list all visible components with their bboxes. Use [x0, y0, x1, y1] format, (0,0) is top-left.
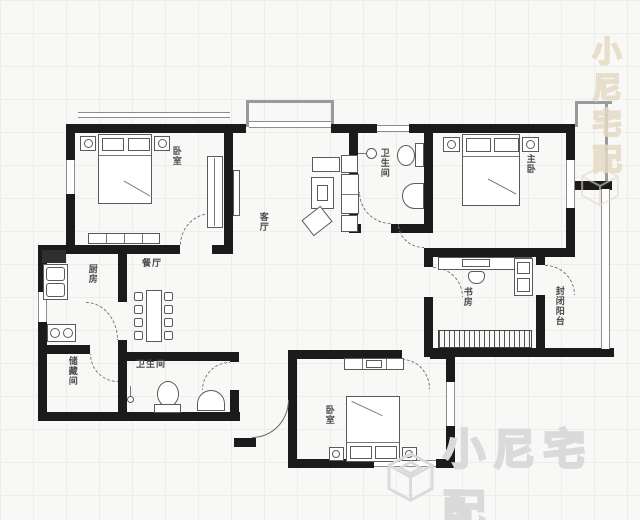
sofa-corner	[341, 155, 358, 173]
door-arc-study	[433, 267, 463, 297]
wall	[424, 257, 433, 267]
dresser-line	[106, 234, 107, 243]
wardrobe	[207, 156, 223, 228]
lamp	[405, 450, 413, 458]
watermark-brand-text: 小尼宅配	[443, 416, 640, 520]
lamp	[332, 450, 340, 458]
pillow	[128, 138, 150, 151]
wall	[233, 124, 246, 133]
lamp	[526, 140, 535, 149]
dresser-line	[386, 359, 387, 369]
desk-chair	[468, 271, 485, 284]
bay-window-wall	[605, 101, 608, 191]
dresser-line	[362, 359, 363, 369]
door-arc-bedroom-bottom	[402, 359, 430, 389]
pillow	[350, 446, 372, 459]
dining-chair	[164, 305, 173, 314]
door-arc-bathroom-bottom	[202, 362, 230, 390]
wall	[288, 350, 297, 468]
wall	[446, 350, 455, 382]
door-arc-master-bedroom	[398, 224, 424, 248]
dining-chair	[164, 331, 173, 340]
pillow	[375, 446, 397, 459]
lamp	[84, 139, 93, 148]
blanket-line	[99, 155, 151, 156]
floor-drain-stem	[130, 386, 131, 396]
door-arc-bathroom-top	[359, 192, 391, 224]
dining-chair	[134, 318, 143, 327]
door-arc-storage	[90, 354, 118, 382]
wall	[212, 245, 233, 254]
toilet-bowl	[397, 145, 415, 166]
lamp	[158, 139, 167, 148]
wall	[566, 133, 575, 160]
wardrobe-line	[214, 158, 215, 226]
balcony-bay-wall	[331, 100, 334, 127]
room-label-bathroom-top: 卫生间	[378, 148, 389, 178]
dining-chair	[134, 292, 143, 301]
armchair	[301, 206, 332, 237]
watermark-bottom-right: 小尼宅配	[384, 416, 640, 520]
wall	[331, 124, 351, 133]
dining-chair	[134, 331, 143, 340]
door-arc-kitchen	[86, 302, 118, 340]
wall	[118, 245, 127, 302]
wall	[536, 257, 545, 265]
toilet-base	[154, 404, 181, 413]
wall	[436, 459, 455, 468]
blanket-line	[347, 442, 399, 443]
room-label-bedroom-top-left: 卧室	[170, 146, 181, 166]
dresser-line	[124, 234, 125, 243]
lamp	[447, 140, 456, 149]
wall	[38, 412, 128, 421]
room-label-enclosed-balcony: 封闭阳台	[553, 286, 564, 326]
window	[377, 125, 409, 132]
sofa-corner	[341, 215, 358, 232]
pillow	[102, 138, 124, 151]
floor-plan: 卧室 客厅 卫生间 主卧 书房 封闭阳台 厨房 餐厅 储藏间 卫生间 卧室 小尼…	[0, 0, 640, 520]
coffee-table-inner	[317, 185, 328, 201]
room-label-storage: 储藏间	[66, 356, 77, 386]
window	[446, 382, 455, 426]
bookshelf	[438, 330, 532, 348]
wall	[120, 412, 240, 421]
dining-chair	[164, 318, 173, 327]
sink-basin	[46, 267, 65, 281]
window	[66, 160, 75, 194]
window	[78, 112, 230, 118]
dining-table	[146, 290, 162, 342]
washbasin	[366, 148, 377, 159]
bay-window-wall	[575, 101, 578, 127]
wall	[424, 124, 433, 224]
toilet-tank	[415, 143, 424, 167]
room-label-bathroom-bottom: 卫生间	[136, 360, 166, 371]
window	[601, 189, 610, 349]
pc-tower	[517, 262, 530, 274]
sink-basin	[46, 283, 65, 297]
wall	[66, 124, 232, 133]
pillow	[466, 138, 491, 152]
floor-drain	[127, 396, 134, 403]
wall	[234, 438, 256, 447]
monitor	[462, 259, 490, 267]
wall	[66, 124, 75, 160]
dresser-knob	[366, 360, 382, 368]
room-label-dining: 餐厅	[142, 259, 162, 270]
burner	[50, 328, 60, 338]
wall	[433, 124, 575, 133]
burner	[63, 328, 73, 338]
sofa-line	[342, 194, 358, 195]
entry-door-arc	[252, 400, 289, 438]
balcony-bay-wall	[246, 100, 334, 103]
tv-cabinet	[233, 170, 240, 216]
blanket-line	[463, 156, 519, 157]
window	[249, 121, 331, 128]
shower-fan	[197, 390, 225, 411]
dining-chair	[134, 305, 143, 314]
room-label-kitchen: 厨房	[86, 264, 97, 284]
room-label-living-room: 客厅	[257, 212, 268, 232]
room-label-master-bedroom: 主卧	[524, 154, 535, 174]
shower-fan	[402, 183, 424, 209]
wall	[38, 322, 47, 421]
wall	[424, 248, 575, 257]
dining-chair	[164, 292, 173, 301]
dresser-line	[142, 234, 143, 243]
wall	[230, 352, 239, 362]
room-label-study: 书房	[461, 287, 472, 307]
wall	[349, 124, 377, 133]
wall	[536, 295, 545, 357]
window	[566, 160, 575, 208]
pillow	[494, 138, 519, 152]
room-label-bedroom-bottom: 卧室	[323, 405, 334, 425]
wall	[46, 345, 90, 354]
counter-corner	[42, 250, 66, 263]
sofa-seat	[312, 157, 340, 172]
wall	[224, 124, 233, 254]
pc-tower	[517, 278, 530, 292]
